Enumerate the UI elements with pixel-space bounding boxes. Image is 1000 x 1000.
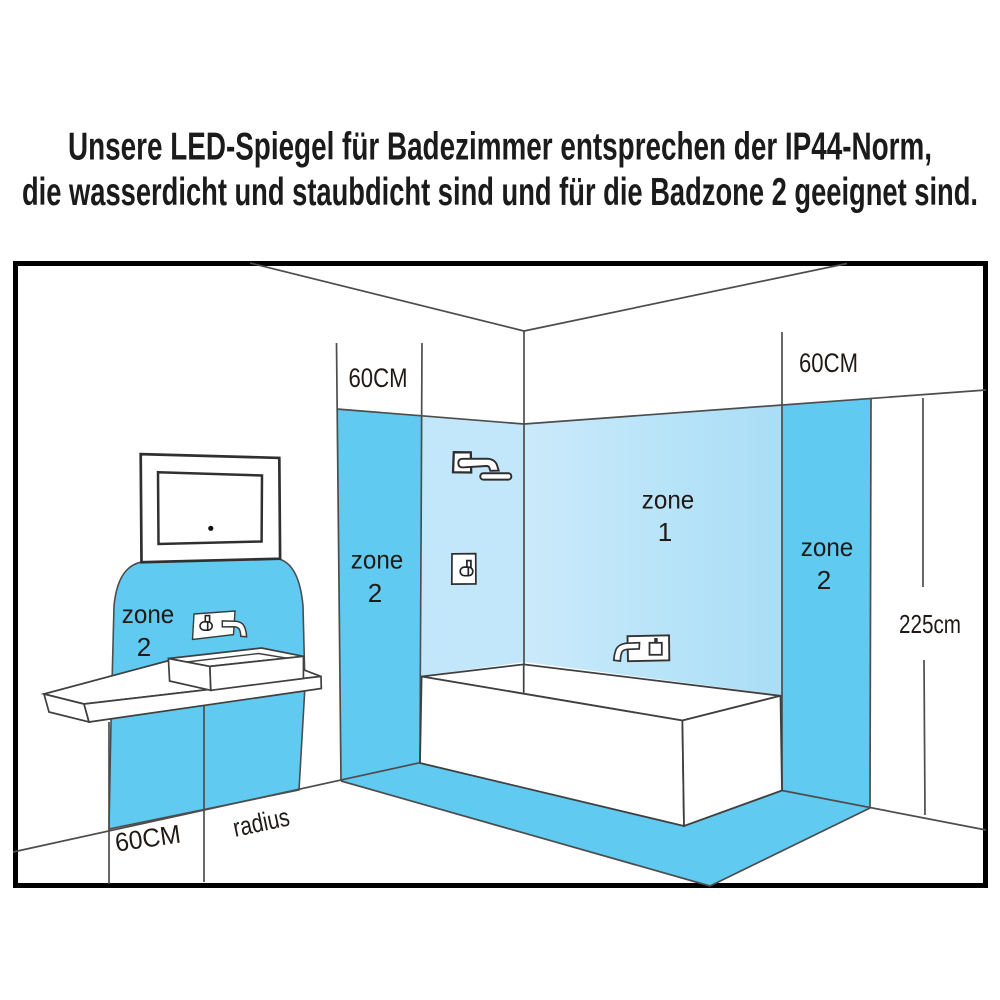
svg-text:2: 2 [137,632,151,662]
svg-text:60CM: 60CM [799,348,858,378]
svg-text:2: 2 [817,565,831,595]
svg-text:zone: zone [801,532,854,562]
svg-text:2: 2 [368,578,382,608]
svg-text:zone: zone [351,545,404,575]
svg-text:1: 1 [658,517,672,547]
svg-text:Unsere LED-Spiegel für Badezim: Unsere LED-Spiegel für Badezimmer entspr… [68,126,932,169]
svg-text:zone: zone [642,485,695,515]
svg-text:60CM: 60CM [349,363,408,393]
svg-text:225cm: 225cm [899,609,961,639]
svg-text:die wasserdicht und staubdicht: die wasserdicht und staubdicht sind und … [22,171,978,214]
svg-text:zone: zone [122,599,175,629]
